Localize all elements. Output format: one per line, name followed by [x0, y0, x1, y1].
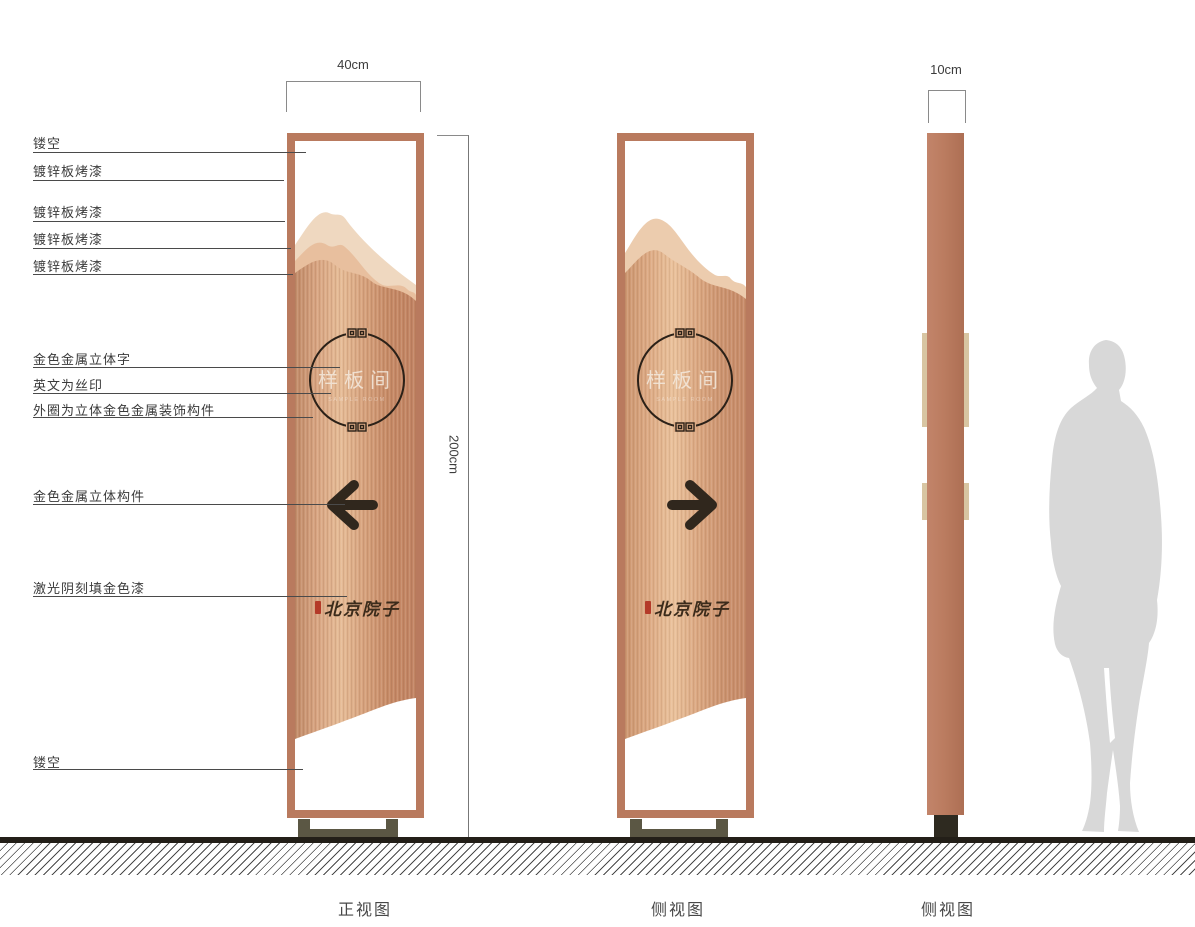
greek-key-icon [346, 422, 368, 432]
leader-line [33, 248, 291, 249]
ring-component-edge [964, 333, 969, 427]
callout-galvanized-2: 镀锌板烤漆 [33, 202, 103, 221]
leader-line [33, 152, 306, 153]
red-seal-icon [645, 601, 651, 614]
view-label-side: 侧视图 [628, 896, 728, 920]
ring-component-edge [922, 333, 927, 427]
profile-view-panel [927, 133, 964, 815]
leader-line [33, 393, 331, 394]
circle-english-subtitle: SAMPLE ROOM [656, 397, 713, 403]
leader-line [33, 274, 293, 275]
front-view-panel: 样板间 SAMPLE ROOM 北京院子 [287, 133, 424, 818]
leader-line [33, 769, 303, 770]
greek-key-icon [674, 328, 696, 338]
red-seal-icon [315, 601, 321, 614]
leader-line [33, 367, 340, 368]
dimension-height-bracket [437, 135, 469, 839]
signage-design-sheet: 镂空 镀锌板烤漆 镀锌板烤漆 镀锌板烤漆 镀锌板烤漆 金色金属立体字 英文为丝印… [0, 0, 1195, 927]
callout-english-silkscreen: 英文为丝印 [33, 375, 103, 394]
greek-key-icon [674, 422, 696, 432]
callout-hollow-top: 镂空 [33, 133, 61, 152]
callout-galvanized-3: 镀锌板烤漆 [33, 229, 103, 248]
callout-galvanized-4: 镀锌板烤漆 [33, 256, 103, 275]
leader-line [33, 180, 284, 181]
dimension-depth-bracket [928, 90, 966, 123]
callout-gold-component: 金色金属立体构件 [33, 486, 145, 505]
dimension-width-bracket [286, 81, 421, 112]
callout-laser-engrave: 激光阴刻填金色漆 [33, 578, 145, 597]
dimension-width-label: 40cm [286, 57, 420, 72]
ground-hatch [0, 843, 1195, 875]
leader-line [33, 596, 347, 597]
callout-gold-letters: 金色金属立体字 [33, 349, 131, 368]
callout-galvanized-1: 镀锌板烤漆 [33, 161, 103, 180]
dimension-depth-label: 10cm [908, 62, 984, 77]
greek-key-icon [346, 328, 368, 338]
side-view-panel: 样板间 SAMPLE ROOM 北京院子 [617, 133, 754, 818]
brand-text: 北京院子 [654, 600, 730, 619]
view-label-front: 正视图 [315, 896, 415, 920]
leader-line [33, 504, 345, 505]
arrow-component-edge [964, 483, 969, 520]
brand-text: 北京院子 [324, 600, 400, 619]
leader-line [33, 221, 285, 222]
view-label-profile: 侧视图 [898, 896, 998, 920]
leader-line [33, 417, 313, 418]
human-silhouette [1036, 338, 1182, 838]
circle-text: 样板间 [646, 369, 724, 392]
dimension-height-label: 200cm [447, 425, 462, 485]
circle-text: 样板间 [318, 369, 396, 392]
arrow-component-edge [922, 483, 927, 520]
wood-grain-texture [625, 250, 746, 739]
circle-english-subtitle: SAMPLE ROOM [328, 397, 385, 403]
